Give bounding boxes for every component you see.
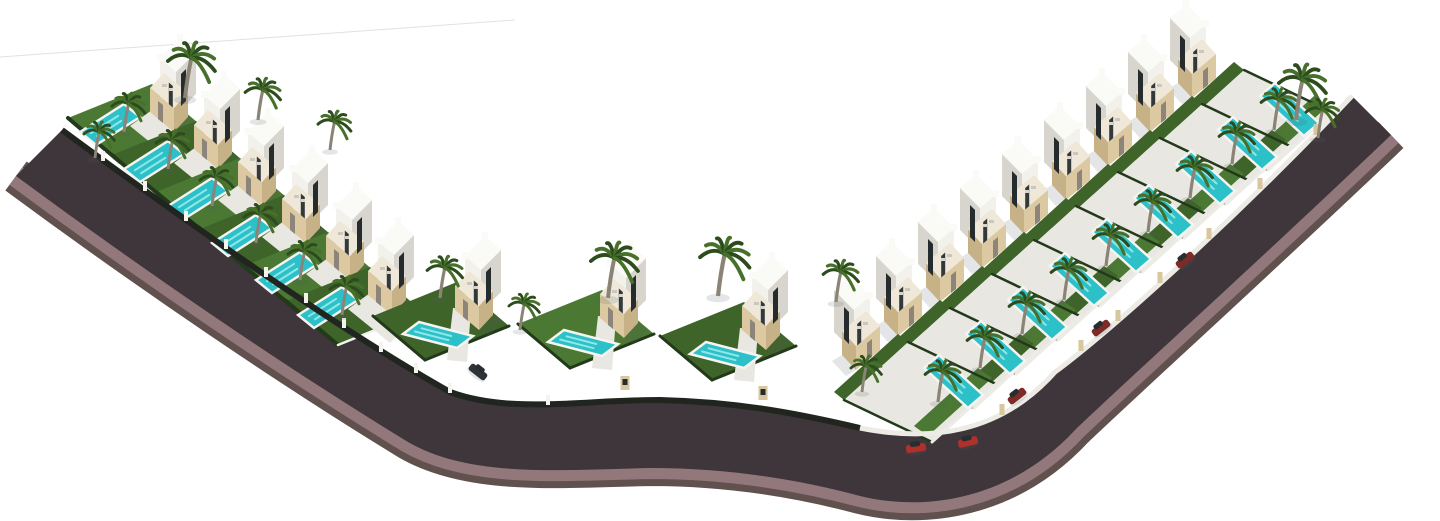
- roof-lounger: [1109, 122, 1113, 125]
- roof-lounger: [1115, 118, 1120, 121]
- parapet-step: [265, 108, 271, 115]
- wall-pillar: [1079, 340, 1084, 351]
- villa-building: [1086, 68, 1132, 166]
- fence-pillar: [264, 267, 268, 277]
- roof-lounger: [1151, 88, 1155, 91]
- window-slot: [1193, 49, 1197, 74]
- roof-lounger: [899, 292, 903, 295]
- parapet-step: [931, 204, 937, 211]
- roof-lounger: [941, 258, 945, 261]
- window-slot: [301, 194, 305, 219]
- window-slot: [857, 321, 861, 346]
- parapet-step: [333, 202, 339, 209]
- roof-lounger: [983, 224, 987, 227]
- wall-pillar: [1158, 272, 1163, 283]
- fence-pillar: [143, 181, 147, 191]
- glazing-slot: [486, 267, 491, 304]
- window-slot: [1025, 185, 1029, 210]
- wall-pillar: [1116, 310, 1121, 321]
- parapet-step: [749, 272, 755, 279]
- parapet-step: [1099, 68, 1105, 75]
- window-slot: [941, 253, 945, 278]
- roof-lounger: [467, 282, 472, 285]
- glazing-slot: [1180, 35, 1185, 72]
- roof-lounger: [345, 236, 349, 239]
- parapet-step: [1015, 136, 1021, 143]
- glazing-slot: [357, 217, 362, 254]
- roof-lounger: [387, 271, 391, 274]
- roof-lounger: [989, 220, 994, 223]
- parapet-step: [909, 258, 915, 265]
- roof-lounger: [1199, 50, 1204, 53]
- parapet-step: [1057, 102, 1063, 109]
- parapet-step: [177, 34, 183, 41]
- palm-tree: [700, 238, 749, 302]
- parapet-step: [375, 237, 381, 244]
- glazing-slot: [225, 106, 230, 143]
- roof-lounger: [213, 125, 217, 128]
- parapet-step: [1141, 34, 1147, 41]
- glazing-slot: [844, 307, 849, 344]
- parapet-step: [482, 232, 488, 239]
- glazing-slot: [1012, 171, 1017, 208]
- roof-lounger: [1067, 156, 1071, 159]
- villa-building: [918, 204, 964, 302]
- villa-building: [1128, 34, 1174, 132]
- glazing-slot: [886, 273, 891, 310]
- parapet-step: [201, 91, 207, 98]
- villa-building: [960, 170, 1006, 268]
- glazing-slot: [399, 252, 404, 289]
- glazing-slot: [269, 143, 274, 180]
- parapet-step: [395, 217, 401, 224]
- parapet-step: [889, 238, 895, 245]
- fence-pillar: [379, 342, 383, 352]
- window-slot: [474, 281, 478, 306]
- roof-lounger: [1193, 54, 1197, 57]
- entrance-gate-pillar: [621, 376, 630, 390]
- window-slot: [257, 157, 261, 182]
- parapet-step: [951, 224, 957, 231]
- villa-building: [1044, 102, 1090, 200]
- roof-lounger: [380, 267, 385, 270]
- glazing-slot: [928, 239, 933, 276]
- roof-lounger: [294, 195, 299, 198]
- window-slot: [899, 287, 903, 312]
- roof-lounger: [754, 302, 759, 305]
- villa-plot: [660, 252, 796, 382]
- roof-lounger: [1073, 152, 1078, 155]
- roof-lounger: [474, 286, 478, 289]
- fence-pillar: [224, 239, 228, 249]
- window-slot: [619, 289, 623, 314]
- parapet-step: [867, 292, 873, 299]
- roof-lounger: [169, 88, 173, 91]
- roof-lounger: [257, 162, 261, 165]
- glazing-slot: [1138, 69, 1143, 106]
- parapet-step: [221, 71, 227, 78]
- villa-building: [1002, 136, 1048, 234]
- roof-lounger: [250, 158, 255, 161]
- window-slot: [387, 266, 391, 291]
- car: [465, 360, 491, 384]
- roof-lounger: [947, 254, 952, 257]
- parapet-step: [1183, 0, 1189, 7]
- parapet-step: [993, 190, 999, 197]
- villa-development-render: [0, 0, 1440, 521]
- roof-lounger: [612, 290, 617, 293]
- fence-pillar: [184, 211, 188, 221]
- roof-lounger: [301, 199, 305, 202]
- glazing-slot: [773, 287, 778, 324]
- villa-building: [1170, 0, 1216, 98]
- parapet-step: [289, 165, 295, 172]
- fence-pillar: [414, 363, 418, 373]
- parapet-step: [309, 145, 315, 152]
- window-slot: [761, 301, 765, 326]
- roof-lounger: [863, 322, 868, 325]
- palm-tree: [318, 111, 351, 155]
- roof-lounger: [206, 121, 211, 124]
- fence-pillar: [546, 395, 550, 405]
- roof-lounger: [857, 326, 861, 329]
- parapet-step: [1203, 20, 1209, 27]
- roof-lounger: [619, 294, 623, 297]
- fence-pillar: [304, 293, 308, 303]
- roof-lounger: [905, 288, 910, 291]
- parapet-step: [245, 128, 251, 135]
- roof-lounger: [1031, 186, 1036, 189]
- glazing-slot: [1054, 137, 1059, 174]
- parapet-step: [157, 54, 163, 61]
- glazing-slot: [970, 205, 975, 242]
- window-slot: [345, 231, 349, 256]
- fence-pillar: [448, 383, 452, 393]
- roof-lounger: [162, 84, 167, 87]
- gate-intercom: [623, 379, 628, 385]
- parapet-step: [462, 252, 468, 259]
- glazing-slot: [313, 180, 318, 217]
- entrance-gate-pillar: [759, 386, 768, 400]
- parapet-step: [353, 182, 359, 189]
- window-slot: [169, 83, 173, 108]
- render-canvas: [0, 0, 1440, 521]
- window-slot: [1151, 83, 1155, 108]
- villa-building: [876, 238, 922, 336]
- wall-pillar: [1000, 404, 1005, 415]
- roof-lounger: [1025, 190, 1029, 193]
- window-slot: [1067, 151, 1071, 176]
- gate-intercom: [761, 389, 766, 395]
- wall-pillar: [1258, 178, 1263, 189]
- wall-pillar: [1207, 228, 1212, 239]
- roof-lounger: [761, 306, 765, 309]
- villa-building: [834, 272, 880, 370]
- glazing-slot: [1096, 103, 1101, 140]
- parapet-step: [769, 252, 775, 259]
- parapet-step: [1119, 88, 1125, 95]
- parapet-step: [1161, 54, 1167, 61]
- roof-lounger: [1157, 84, 1162, 87]
- parapet-step: [973, 170, 979, 177]
- window-slot: [983, 219, 987, 244]
- window-slot: [213, 120, 217, 145]
- window-slot: [1109, 117, 1113, 142]
- parapet-step: [1077, 122, 1083, 129]
- roof-lounger: [338, 232, 343, 235]
- parapet-step: [1035, 156, 1041, 163]
- horizon-line: [0, 20, 515, 57]
